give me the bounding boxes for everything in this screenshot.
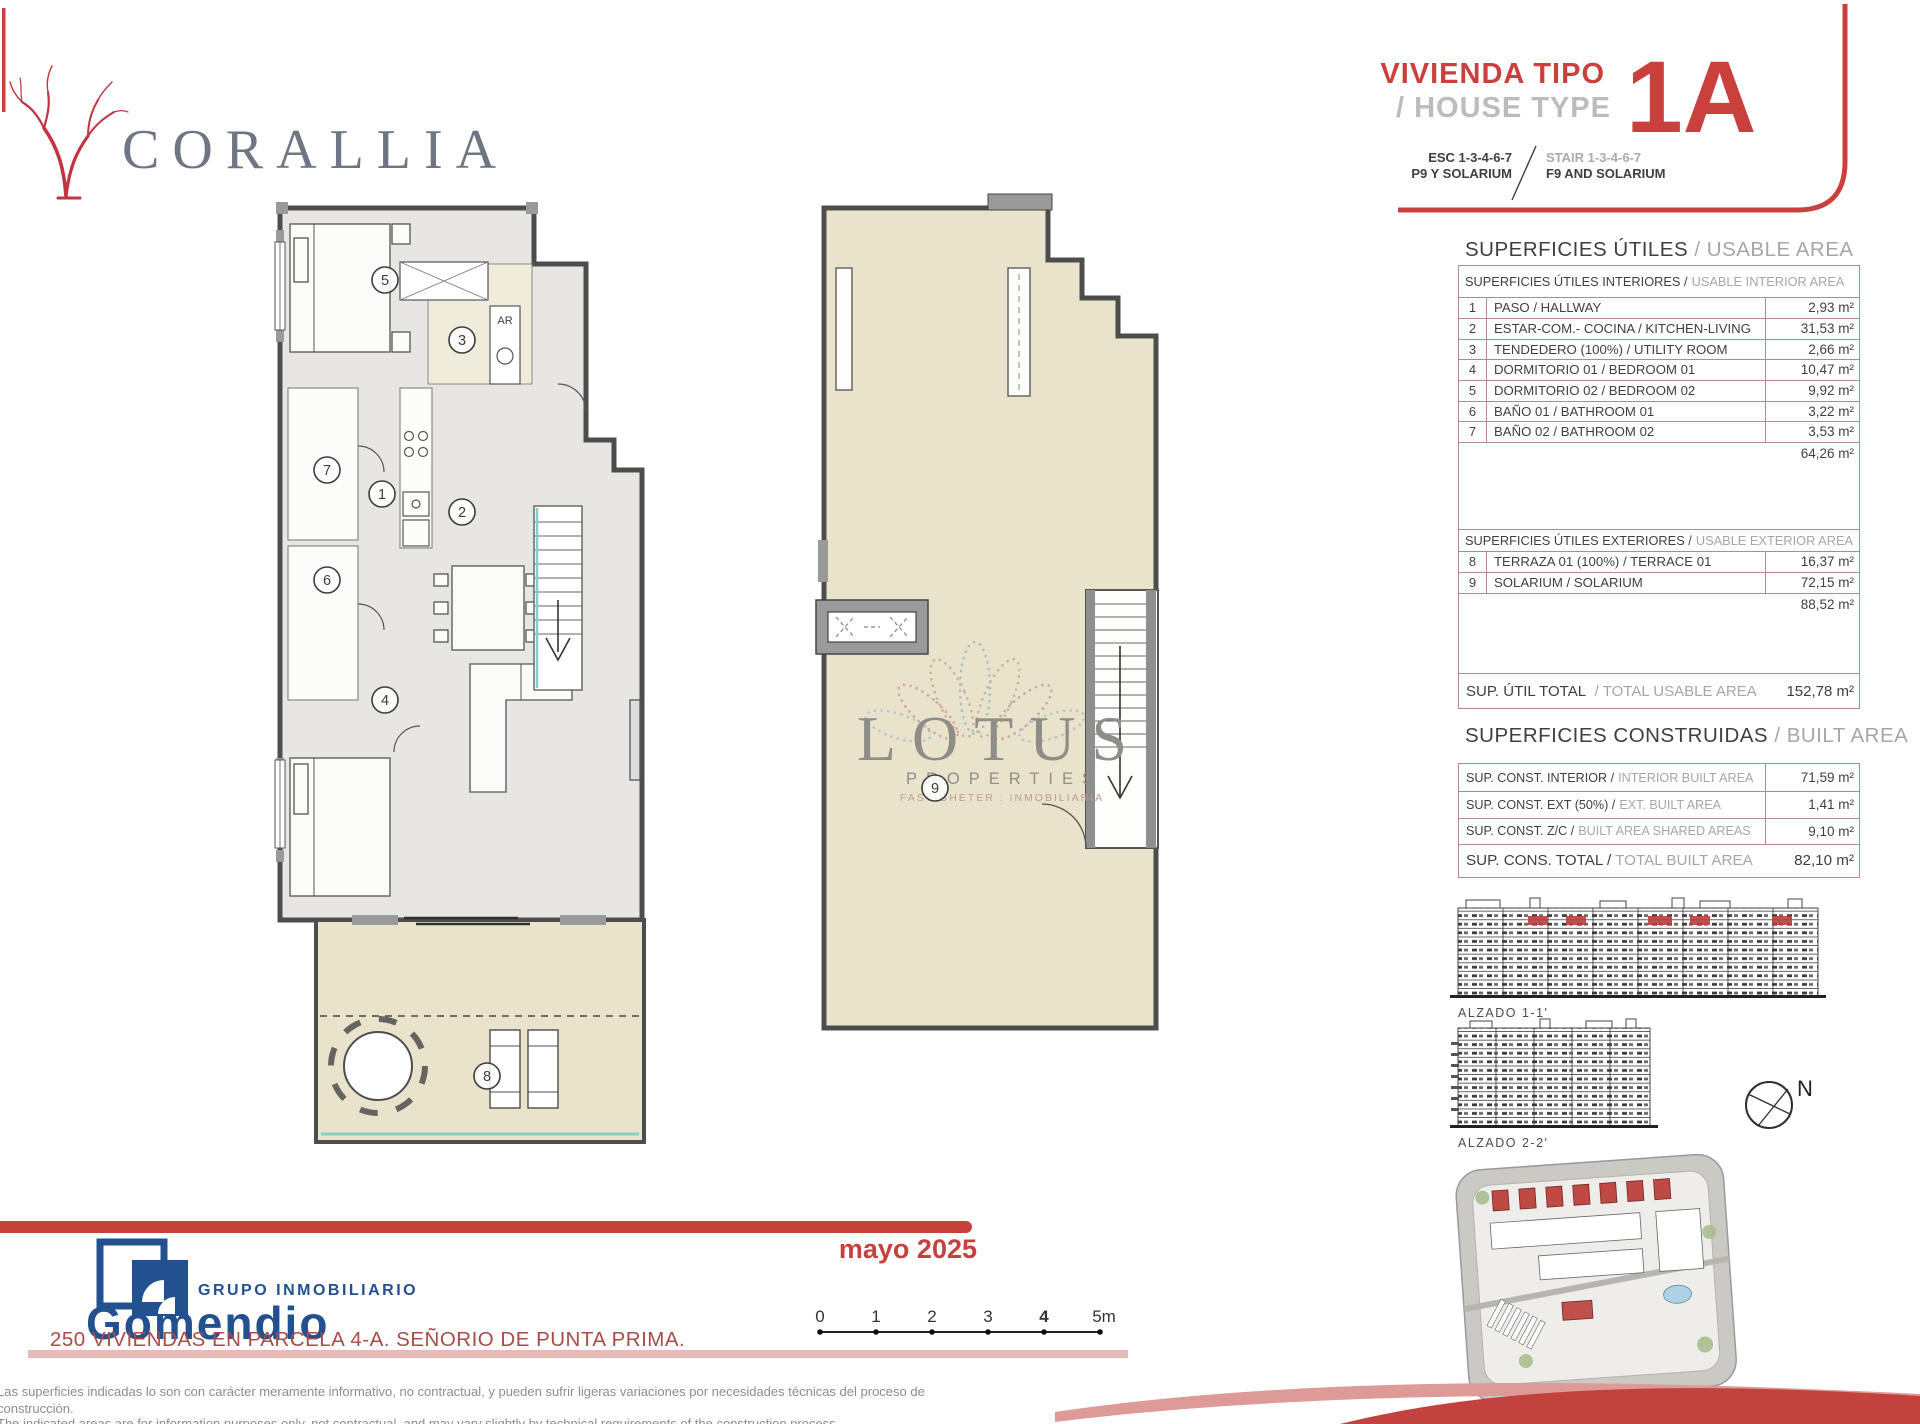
- row-num: 1: [1459, 297, 1487, 318]
- row-num: 5: [1459, 380, 1487, 401]
- built-title-es: SUPERFICIES CONSTRUIDAS: [1465, 724, 1768, 747]
- usable-interior-header: SUPERFICIES ÚTILES INTERIORES / USABLE I…: [1459, 266, 1859, 298]
- elevation-alzado-2: [1450, 1019, 1658, 1128]
- room-badge-8: 8: [483, 1069, 491, 1085]
- header-p9: P9 Y SOLARIUM: [1396, 166, 1512, 182]
- room-badge-1: 1: [378, 487, 386, 503]
- usable-exterior-header-es: SUPERFICIES ÚTILES EXTERIORES /: [1465, 533, 1692, 548]
- built-label-en: BUILT AREA SHARED AREAS: [1578, 824, 1750, 838]
- row-value: 10,47 m²: [1765, 359, 1859, 380]
- row-name: BAÑO 01 / BATHROOM 01: [1487, 401, 1765, 421]
- lotus-name: LOTUS: [857, 703, 1143, 774]
- disclaimer-es-line1: Las superficies indicadas lo son con car…: [0, 1384, 925, 1399]
- row-value: 2,93 m²: [1765, 297, 1859, 318]
- row-name: TENDEDERO (100%) / UTILITY ROOM: [1487, 339, 1765, 359]
- header-sub-block: ESC 1-3-4-6-7 P9 Y SOLARIUM STAIR 1-3-4-…: [1396, 150, 1665, 182]
- row-num: 2: [1459, 318, 1487, 339]
- usable-total-es: SUP. ÚTIL TOTAL: [1466, 683, 1586, 700]
- disclaimer-es-line2: construcción.: [0, 1401, 74, 1416]
- room-badge-7: 7: [323, 463, 331, 479]
- floor-plan-solarium: [816, 194, 1158, 1028]
- usable-area-title: SUPERFICIES ÚTILES / USABLE AREA: [1465, 238, 1854, 262]
- scale-2: 2: [927, 1307, 936, 1326]
- usable-interior-header-es: SUPERFICIES ÚTILES INTERIORES /: [1465, 274, 1688, 289]
- table-row: 8 TERRAZA 01 (100%) / TERRACE 01 16,37 m…: [1459, 551, 1859, 573]
- table-row: 6 BAÑO 01 / BATHROOM 01 3,22 m²: [1459, 401, 1859, 422]
- site-plan: [1454, 1153, 1738, 1403]
- row-value: 16,37 m²: [1765, 551, 1859, 572]
- row-value: 9,10 m²: [1765, 818, 1859, 844]
- row-num: 3: [1459, 339, 1487, 359]
- built-label-en: TOTAL BUILT AREA: [1615, 852, 1753, 869]
- ar-closet-label: AR: [497, 315, 512, 327]
- built-label-es: SUP. CONST. EXT (50%) /: [1466, 798, 1615, 812]
- built-label-es: SUP. CONST. Z/C /: [1466, 824, 1574, 838]
- row-value: 31,53 m²: [1765, 318, 1859, 339]
- row-num: 7: [1459, 421, 1487, 442]
- room-badge-3: 3: [458, 333, 466, 349]
- table-row: 4 DORMITORIO 01 / BEDROOM 01 10,47 m²: [1459, 359, 1859, 381]
- date-label: mayo 2025: [620, 1234, 977, 1265]
- table-row: 9 SOLARIUM / SOLARIUM 72,15 m²: [1459, 572, 1859, 594]
- row-value: 3,53 m²: [1765, 421, 1859, 442]
- scale-5m: 5m: [1092, 1307, 1116, 1326]
- built-label-en: INTERIOR BUILT AREA: [1618, 771, 1753, 785]
- table-row: 5 DORMITORIO 02 / BEDROOM 02 9,92 m²: [1459, 380, 1859, 402]
- usable-exterior-header: SUPERFICIES ÚTILES EXTERIORES / USABLE E…: [1459, 529, 1859, 552]
- row-value: 72,15 m²: [1765, 572, 1859, 593]
- row-value: 71,59 m²: [1765, 764, 1859, 791]
- alzado1-label: ALZADO 1-1': [1458, 1006, 1548, 1020]
- row-value: 1,41 m²: [1765, 791, 1859, 818]
- table-row: SUP. CONST. Z/C / BUILT AREA SHARED AREA…: [1459, 818, 1859, 845]
- table-row: 7 BAÑO 02 / BATHROOM 02 3,53 m²: [1459, 421, 1859, 443]
- built-label-en: EXT. BUILT AREA: [1619, 798, 1721, 812]
- row-name: PASO / HALLWAY: [1487, 297, 1765, 318]
- plan-sheet: LOTUS PROPERTIES FASTIGHETER : INMOBILIA…: [0, 0, 1920, 1424]
- scale-3: 3: [983, 1307, 992, 1326]
- usable-interior-subtotal: 64,26 m²: [1801, 446, 1854, 461]
- usable-exterior-header-en: USABLE EXTERIOR AREA: [1696, 533, 1853, 548]
- built-label-es: SUP. CONS. TOTAL /: [1466, 852, 1611, 869]
- disclaimer-en: The indicated areas are for information …: [0, 1416, 839, 1424]
- built-area-title: SUPERFICIES CONSTRUIDAS / BUILT AREA: [1465, 724, 1908, 748]
- room-badge-4: 4: [381, 693, 389, 709]
- row-num: 9: [1459, 572, 1487, 593]
- row-name: BAÑO 02 / BATHROOM 02: [1487, 421, 1765, 442]
- table-row: 1 PASO / HALLWAY 2,93 m²: [1459, 297, 1859, 319]
- usable-total-en: / TOTAL USABLE AREA: [1595, 683, 1757, 700]
- usable-area-table: SUPERFICIES ÚTILES INTERIORES / USABLE I…: [1458, 265, 1860, 709]
- compass-north-label: N: [1797, 1076, 1813, 1101]
- row-name: DORMITORIO 01 / BEDROOM 01: [1487, 359, 1765, 380]
- table-row: SUP. CONST. EXT (50%) / EXT. BUILT AREA …: [1459, 791, 1859, 819]
- corallia-coral-icon: [10, 66, 128, 198]
- alzado2-label: ALZADO 2-2': [1458, 1136, 1548, 1150]
- table-row: SUP. CONS. TOTAL / TOTAL BUILT AREA 82,1…: [1459, 844, 1859, 876]
- corallia-wordmark: CORALLIA: [122, 118, 509, 182]
- built-title-en: / BUILT AREA: [1774, 724, 1908, 747]
- elevation-alzado-1: [1450, 898, 1826, 998]
- usable-interior-header-en: USABLE INTERIOR AREA: [1692, 274, 1845, 289]
- project-title: 250 VIVIENDAS EN PARCELA 4-A. SEÑORIO DE…: [50, 1328, 685, 1352]
- row-name: TERRAZA 01 (100%) / TERRACE 01: [1487, 551, 1765, 572]
- left-red-tick: [2, 8, 6, 112]
- header-esc: ESC 1-3-4-6-7: [1396, 150, 1512, 166]
- row-name: ESTAR-COM.- COCINA / KITCHEN-LIVING: [1487, 318, 1765, 339]
- scale-bar: 0 1 2 3 4 5m: [815, 1307, 1116, 1335]
- row-value: 3,22 m²: [1765, 401, 1859, 421]
- header-title-en: / HOUSE TYPE: [1205, 92, 1611, 125]
- row-value: 82,10 m²: [1766, 844, 1859, 876]
- table-row: 3 TENDEDERO (100%) / UTILITY ROOM 2,66 m…: [1459, 339, 1859, 360]
- table-row: 2 ESTAR-COM.- COCINA / KITCHEN-LIVING 31…: [1459, 318, 1859, 340]
- usable-exterior-subtotal: 88,52 m²: [1801, 597, 1854, 612]
- sheet-graphics: LOTUS PROPERTIES FASTIGHETER : INMOBILIA…: [0, 0, 1920, 1424]
- header-f9: F9 AND SOLARIUM: [1546, 166, 1665, 182]
- room-badge-5: 5: [381, 273, 389, 289]
- row-name: SOLARIUM / SOLARIUM: [1487, 572, 1765, 593]
- row-value: 9,92 m²: [1765, 380, 1859, 401]
- header-title-es: VIVIENDA TIPO: [1205, 58, 1605, 91]
- room-badge-9: 9: [931, 781, 939, 797]
- row-value: 2,66 m²: [1765, 339, 1859, 359]
- scale-4: 4: [1039, 1307, 1049, 1326]
- row-name: DORMITORIO 02 / BEDROOM 02: [1487, 380, 1765, 401]
- row-num: 6: [1459, 401, 1487, 421]
- unit-type-badge: 1A: [1626, 46, 1756, 148]
- scale-1: 1: [871, 1307, 880, 1326]
- compass-icon: N: [1746, 1076, 1813, 1128]
- table-row: SUP. CONST. INTERIOR / INTERIOR BUILT AR…: [1459, 764, 1859, 792]
- usable-title-en: / USABLE AREA: [1694, 238, 1853, 261]
- footer-red-bar: [0, 1221, 972, 1233]
- room-badge-6: 6: [323, 573, 331, 589]
- usable-title-es: SUPERFICIES ÚTILES: [1465, 238, 1688, 261]
- row-num: 8: [1459, 551, 1487, 572]
- usable-total-row: SUP. ÚTIL TOTAL / TOTAL USABLE AREA 152,…: [1459, 673, 1859, 708]
- scale-0: 0: [815, 1307, 824, 1326]
- usable-total-value: 152,78 m²: [1786, 683, 1859, 700]
- room-badge-2: 2: [458, 505, 466, 521]
- built-area-table: SUP. CONST. INTERIOR / INTERIOR BUILT AR…: [1458, 763, 1860, 878]
- built-label-es: SUP. CONST. INTERIOR /: [1466, 771, 1614, 785]
- row-num: 4: [1459, 359, 1487, 380]
